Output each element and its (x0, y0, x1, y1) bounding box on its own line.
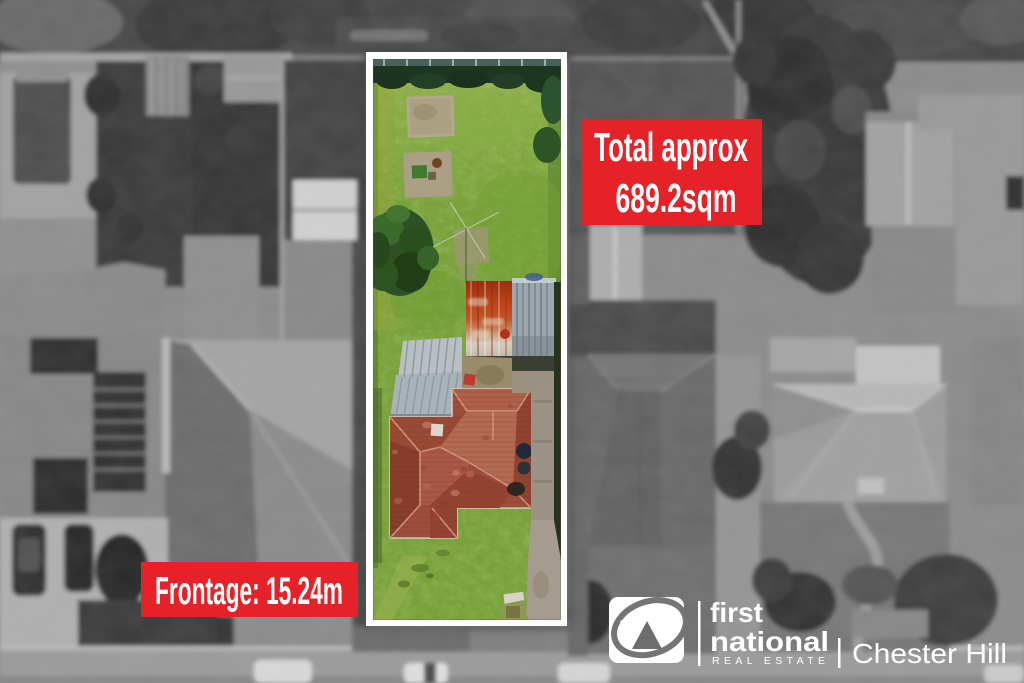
svg-text:national: national (710, 626, 829, 657)
svg-text:689.2sqm: 689.2sqm (616, 175, 737, 221)
svg-text:Total approx: Total approx (594, 124, 748, 170)
svg-text:Chester Hill: Chester Hill (852, 638, 1007, 669)
svg-text:REAL ESTATE: REAL ESTATE (712, 655, 829, 667)
svg-text:first: first (710, 597, 763, 628)
svg-text:Frontage: 15.24m: Frontage: 15.24m (155, 570, 343, 613)
